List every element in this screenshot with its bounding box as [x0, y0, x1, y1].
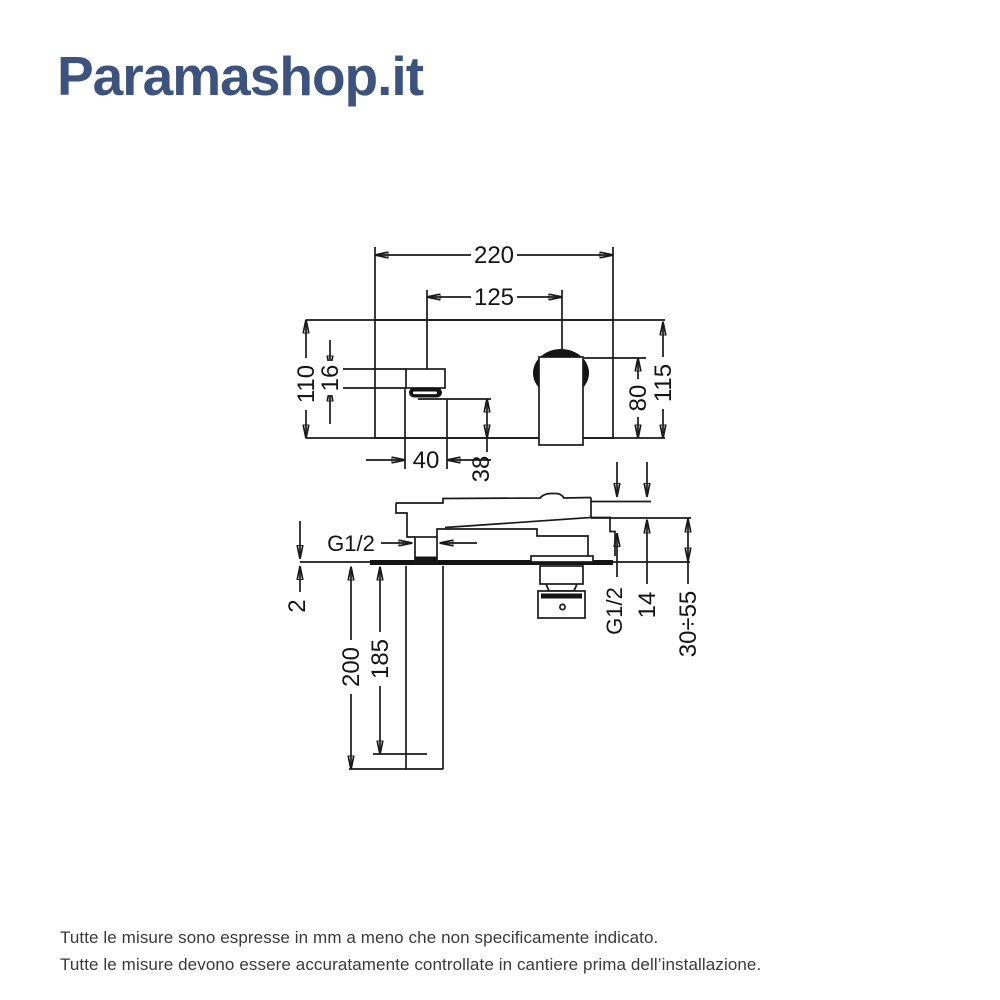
dim-depth-total: 200 [338, 647, 365, 687]
dim-handle-height: 80 [625, 385, 652, 412]
lever-side [396, 494, 591, 504]
dim-depth-inner: 185 [367, 639, 394, 679]
label-outlet-thread: G1/2 [327, 531, 375, 556]
dim-spout-width: 40 [413, 447, 440, 474]
footer-note-2: Tutte le misure devono essere accuratame… [60, 951, 761, 978]
front-view: 220 125 110 16 40 38 [293, 242, 677, 482]
escutcheon-side [531, 556, 593, 562]
dim-plate-height: 110 [293, 365, 320, 403]
footer-notes: Tutte le misure sono espresse in mm a me… [60, 924, 761, 978]
handle-body-front [539, 357, 583, 445]
dim-wall-depth-range: 30÷55 [675, 591, 702, 658]
dim-handle-end: 14 [634, 592, 661, 619]
label-inlet-thread: G1/2 [602, 587, 627, 635]
dim-spout-drop: 38 [468, 456, 495, 483]
side-view: 2 200 185 G1/2 14 G1/2 [284, 462, 702, 769]
dim-spout-to-handle: 125 [474, 284, 514, 311]
valve-body-side [540, 566, 583, 584]
dim-total-height: 115 [650, 364, 677, 402]
dim-plate-thickness: 2 [284, 599, 311, 612]
technical-drawing: 220 125 110 16 40 38 [0, 0, 1000, 1000]
dim-spout-height: 16 [317, 365, 344, 392]
spout-front [406, 369, 445, 388]
dim-plate-width: 220 [474, 242, 514, 269]
footer-note-1: Tutte le misure sono espresse in mm a me… [60, 924, 761, 951]
